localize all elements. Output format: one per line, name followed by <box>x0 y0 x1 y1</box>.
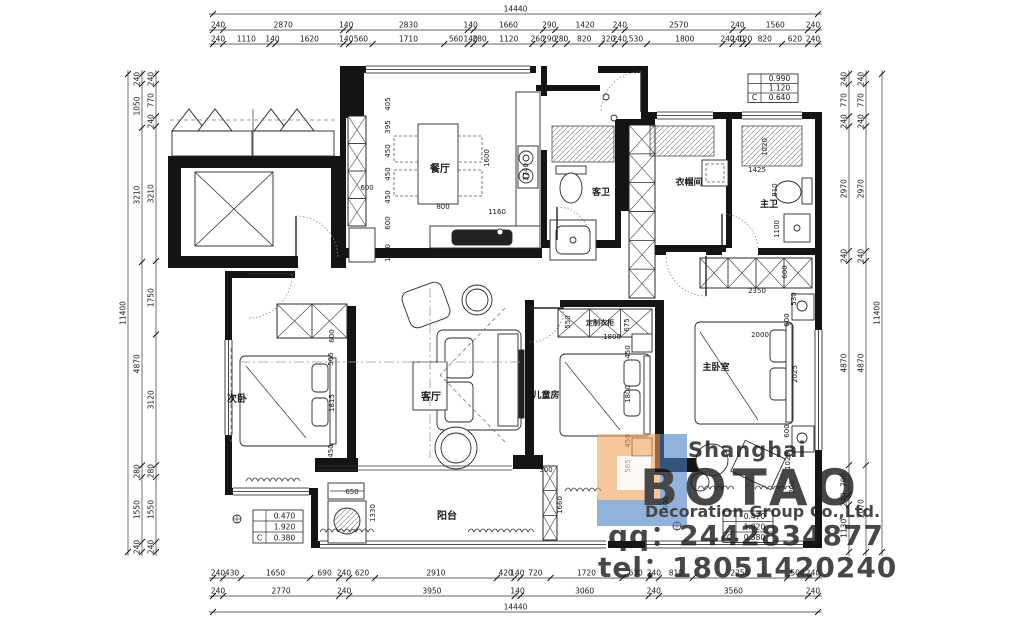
dim-value: 240 <box>857 72 866 87</box>
dim-value: 770 <box>840 93 849 108</box>
dim-value: 1110 <box>237 35 256 44</box>
legend-table-bottom-left: 0.4701.920C0.380 <box>253 510 303 543</box>
dim-value: 11400 <box>873 301 882 325</box>
furniture <box>252 131 334 156</box>
dim-value: 1120 <box>499 35 518 44</box>
dim-value: 1620 <box>300 35 319 44</box>
legend-table-top-right: 0.9901.120C0.640 <box>748 74 798 103</box>
dim-value: 240 <box>133 540 142 555</box>
inline-dim: 1800 <box>603 333 621 341</box>
dim-value: 140 <box>510 569 525 578</box>
inline-dim: 2000 <box>751 331 769 339</box>
furniture <box>312 398 328 426</box>
dim-value: 240 <box>337 569 352 578</box>
dim-chain-left-total: 11400 <box>119 70 132 556</box>
inline-dim: 450 <box>624 345 632 358</box>
dim-chain-left-major: 2401050321048702801550240 <box>133 70 146 556</box>
dim-value: 280 <box>133 464 142 479</box>
dim-value: 240 <box>211 21 226 30</box>
dim-value: 140 <box>339 21 354 30</box>
dim-value: 2870 <box>274 21 293 30</box>
dim-value: 1420 <box>576 21 595 30</box>
dim-value: 1800 <box>675 35 694 44</box>
hatch-symbol <box>565 488 601 491</box>
inline-dim: 2025 <box>791 365 799 383</box>
dim-value: 1650 <box>266 569 285 578</box>
dim-value: 770 <box>147 93 156 108</box>
dim-value: 240 <box>840 249 849 264</box>
dim-value: 240 <box>840 72 849 87</box>
dim-value: 240 <box>211 35 226 44</box>
dim-value: 240 <box>613 35 628 44</box>
furniture <box>498 334 518 426</box>
room-label-guest-bath: 客卫 <box>591 186 610 198</box>
legend-value: 0.470 <box>274 512 296 521</box>
dim-value: 240 <box>337 587 352 596</box>
hatch-symbol <box>468 529 534 532</box>
inline-dim: 450 <box>384 190 392 203</box>
dim-value: 240 <box>647 587 662 596</box>
dim-value: 290 <box>542 21 557 30</box>
inline-dim: 550 <box>564 315 572 328</box>
inline-dim: 600 <box>360 184 373 192</box>
dim-value: 3210 <box>147 184 156 203</box>
watermark: ShanghaiBOTAODecoration Group Co.,Ltd.qq… <box>597 434 897 584</box>
dim-value: 120 <box>738 35 753 44</box>
inline-dim: 810 <box>771 183 779 196</box>
dim-value: 4870 <box>133 354 142 373</box>
inline-dim: 600 <box>783 424 791 437</box>
dim-value: 3120 <box>147 390 156 409</box>
inline-dim: 1800 <box>624 385 632 403</box>
dim-value: 1550 <box>147 500 156 519</box>
legend-value: 0.990 <box>769 74 791 83</box>
dim-value: 4870 <box>840 353 849 372</box>
inline-dim: 1660 <box>556 496 564 514</box>
dim-value: 2970 <box>840 179 849 198</box>
inline-dim: 1000 <box>384 244 392 262</box>
inline-dim: 650 <box>345 488 358 496</box>
room-label-cloakroom: 衣帽间 <box>675 176 702 188</box>
dim-value: 3950 <box>422 587 441 596</box>
legend-key: C <box>257 534 262 543</box>
dim-value: 720 <box>528 569 543 578</box>
dim-chain-top-minor: 2401110140162014056017105601402801120260… <box>209 35 822 48</box>
dim-chain-bottom-total: 14440 <box>209 603 822 616</box>
dim-value: 11400 <box>119 301 128 325</box>
dim-value: 1710 <box>399 35 418 44</box>
furniture <box>349 228 375 262</box>
floorplan-drawing: 餐厅客卫衣帽间主卫次卧客厅儿童房主卧室阳台定制衣柜405395450450450… <box>0 0 1011 628</box>
inline-dim: 450 <box>384 167 392 180</box>
dim-value: 2570 <box>669 21 688 30</box>
furniture <box>624 360 640 386</box>
dim-value: 280 <box>472 35 487 44</box>
dim-value: 1660 <box>499 21 518 30</box>
inline-dim: 1815 <box>328 394 336 412</box>
dim-value: 4870 <box>857 353 866 372</box>
watermark-text-3: qq：2442834877 <box>608 519 884 552</box>
dim-value: 1050 <box>133 96 142 115</box>
furniture <box>770 368 788 400</box>
dim-value: 770 <box>857 93 866 108</box>
inline-dim: 1425 <box>748 166 766 174</box>
furniture <box>770 330 788 362</box>
inline-dim: 1020 <box>761 138 769 156</box>
room-label-dining: 餐厅 <box>429 162 450 175</box>
dim-value: 240 <box>806 35 821 44</box>
dim-value: 2830 <box>399 21 418 30</box>
dim-value: 240 <box>133 72 142 87</box>
door-arc <box>601 72 641 112</box>
legend-value: 0.640 <box>769 93 791 102</box>
dim-value: 140 <box>339 35 354 44</box>
inline-dim: 800 <box>436 203 449 211</box>
inline-dim: 450 <box>327 444 335 457</box>
furniture <box>445 338 473 378</box>
furniture <box>644 356 650 434</box>
legend-value: 0.380 <box>274 534 296 543</box>
dim-value: 2910 <box>426 569 445 578</box>
inline-dim: 405 <box>384 97 392 110</box>
watermark-text-4: tel：18051420240 <box>598 551 897 584</box>
room-label-second-bedroom: 次卧 <box>227 392 247 405</box>
dim-value: 430 <box>225 569 240 578</box>
dim-value: 1750 <box>147 288 156 307</box>
dim-value: 690 <box>317 569 332 578</box>
dim-value: 560 <box>449 35 464 44</box>
dim-value: 240 <box>147 72 156 87</box>
dim-value: 560 <box>354 35 369 44</box>
hatch-symbol <box>246 478 300 481</box>
furniture <box>802 178 812 204</box>
dim-value: 14440 <box>504 603 528 612</box>
inline-dim: 3740 <box>522 163 530 181</box>
legend-value: 1.120 <box>769 84 791 93</box>
furniture <box>519 350 524 418</box>
dim-value: 2770 <box>272 587 291 596</box>
room-label-master-bath: 主卫 <box>760 198 778 210</box>
furniture <box>312 364 328 392</box>
dim-value: 3060 <box>575 587 594 596</box>
dim-value: 240 <box>613 21 628 30</box>
inline-dim: 1600 <box>483 149 491 167</box>
legend-key: C <box>752 93 757 102</box>
legend-value: 1.920 <box>274 523 296 532</box>
dim-value: 280 <box>554 35 569 44</box>
dim-value: 620 <box>788 35 803 44</box>
inline-dim: 530 <box>790 292 798 305</box>
dim-value: 240 <box>211 569 226 578</box>
furniture <box>445 382 473 422</box>
inline-dim: 1160 <box>488 208 506 216</box>
inline-dim: 395 <box>384 120 392 133</box>
dim-value: 240 <box>806 587 821 596</box>
furniture <box>632 334 652 352</box>
dim-chain-left-minor: 2407702403210175031202801550240 <box>147 70 160 556</box>
inline-dim: 1100 <box>773 220 781 238</box>
dim-value: 530 <box>629 35 644 44</box>
dim-chain-right-total: 11400 <box>873 70 886 556</box>
inline-dim: 1330 <box>369 504 377 522</box>
inline-dim: 600 <box>783 313 791 326</box>
room-label-balcony: 阳台 <box>437 509 457 522</box>
furniture <box>172 131 254 156</box>
dim-value: 240 <box>211 587 226 596</box>
inline-dim: 600 <box>384 216 392 229</box>
inline-dim: 300 <box>539 466 552 474</box>
dim-value: 820 <box>577 35 592 44</box>
dim-value: 280 <box>147 464 156 479</box>
dim-value: 140 <box>510 587 525 596</box>
room-label-living-room: 客厅 <box>420 390 441 403</box>
dim-value: 140 <box>464 21 479 30</box>
dim-value: 240 <box>840 114 849 129</box>
dim-chain-top-major: 2402870140283014016602901420240257024015… <box>209 21 822 34</box>
dim-chain-bottom-major: 2402770240395014030602403560240 <box>209 587 822 600</box>
furniture <box>400 280 452 330</box>
dim-value: 14440 <box>504 5 528 14</box>
inline-dim: 675 <box>623 318 631 331</box>
dim-value: 240 <box>730 21 745 30</box>
dim-value: 3210 <box>133 185 142 204</box>
dim-value: 3560 <box>724 587 743 596</box>
room-label-custom-wardrobe: 定制衣柜 <box>586 318 614 327</box>
floorplan-stage: 餐厅客卫衣帽间主卫次卧客厅儿童房主卧室阳台定制衣柜405395450450450… <box>0 0 1011 628</box>
dim-chain-top-total: 14440 <box>209 5 822 18</box>
dim-value: 240 <box>857 114 866 129</box>
room-label-kids-room: 儿童房 <box>531 389 559 401</box>
inline-dim: 2350 <box>748 287 766 295</box>
dim-value: 2970 <box>857 179 866 198</box>
dim-value: 1560 <box>766 21 785 30</box>
dim-value: 240 <box>147 540 156 555</box>
dim-value: 620 <box>355 569 370 578</box>
dim-value: 1550 <box>133 500 142 519</box>
dim-value: 1720 <box>577 569 596 578</box>
dim-value: 240 <box>806 21 821 30</box>
dim-value: 820 <box>758 35 773 44</box>
dim-value: 240 <box>147 114 156 129</box>
dim-value: 140 <box>265 35 280 44</box>
inline-dim: 505 <box>327 352 335 365</box>
inline-dim: 600 <box>781 265 789 278</box>
inline-dim: 600 <box>328 329 336 342</box>
room-label-master-bedroom: 主卧室 <box>702 361 729 373</box>
dim-value: 240 <box>857 249 866 264</box>
inline-dim: 450 <box>384 144 392 157</box>
